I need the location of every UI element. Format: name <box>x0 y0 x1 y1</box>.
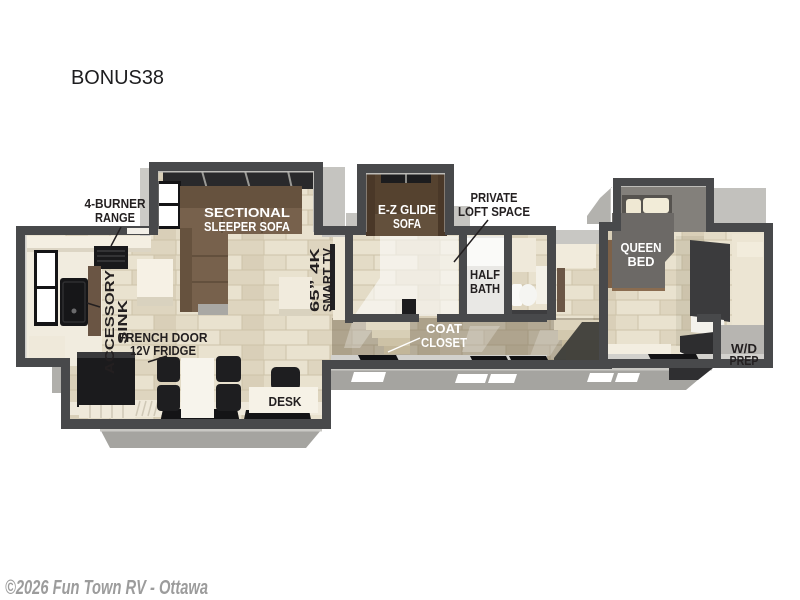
svg-text:BONUS38: BONUS38 <box>71 67 164 89</box>
svg-text:CLOSET: CLOSET <box>421 335 467 350</box>
svg-text:BATH: BATH <box>470 281 500 296</box>
svg-text:12V FRIDGE: 12V FRIDGE <box>130 343 196 358</box>
svg-text:RANGE: RANGE <box>95 210 135 225</box>
svg-text:HALF: HALF <box>470 267 500 282</box>
svg-text:COAT: COAT <box>426 321 462 336</box>
svg-text:E-Z GLIDE: E-Z GLIDE <box>378 202 436 217</box>
svg-text:SLEEPER SOFA: SLEEPER SOFA <box>204 219 291 234</box>
svg-text:BED: BED <box>628 254 655 269</box>
svg-text:PRIVATE: PRIVATE <box>471 190 518 205</box>
svg-text:DESK: DESK <box>269 394 303 409</box>
svg-text:©2026 Fun Town RV - Ottawa: ©2026 Fun Town RV - Ottawa <box>5 577 208 599</box>
svg-text:QUEEN: QUEEN <box>621 240 662 255</box>
svg-text:SOFA: SOFA <box>393 216 421 231</box>
svg-text:PREP: PREP <box>730 353 759 368</box>
svg-text:4-BURNER: 4-BURNER <box>85 196 147 211</box>
svg-text:LOFT SPACE: LOFT SPACE <box>458 204 530 219</box>
svg-text:SECTIONAL: SECTIONAL <box>204 205 290 220</box>
svg-text:SMART TV: SMART TV <box>320 248 335 312</box>
